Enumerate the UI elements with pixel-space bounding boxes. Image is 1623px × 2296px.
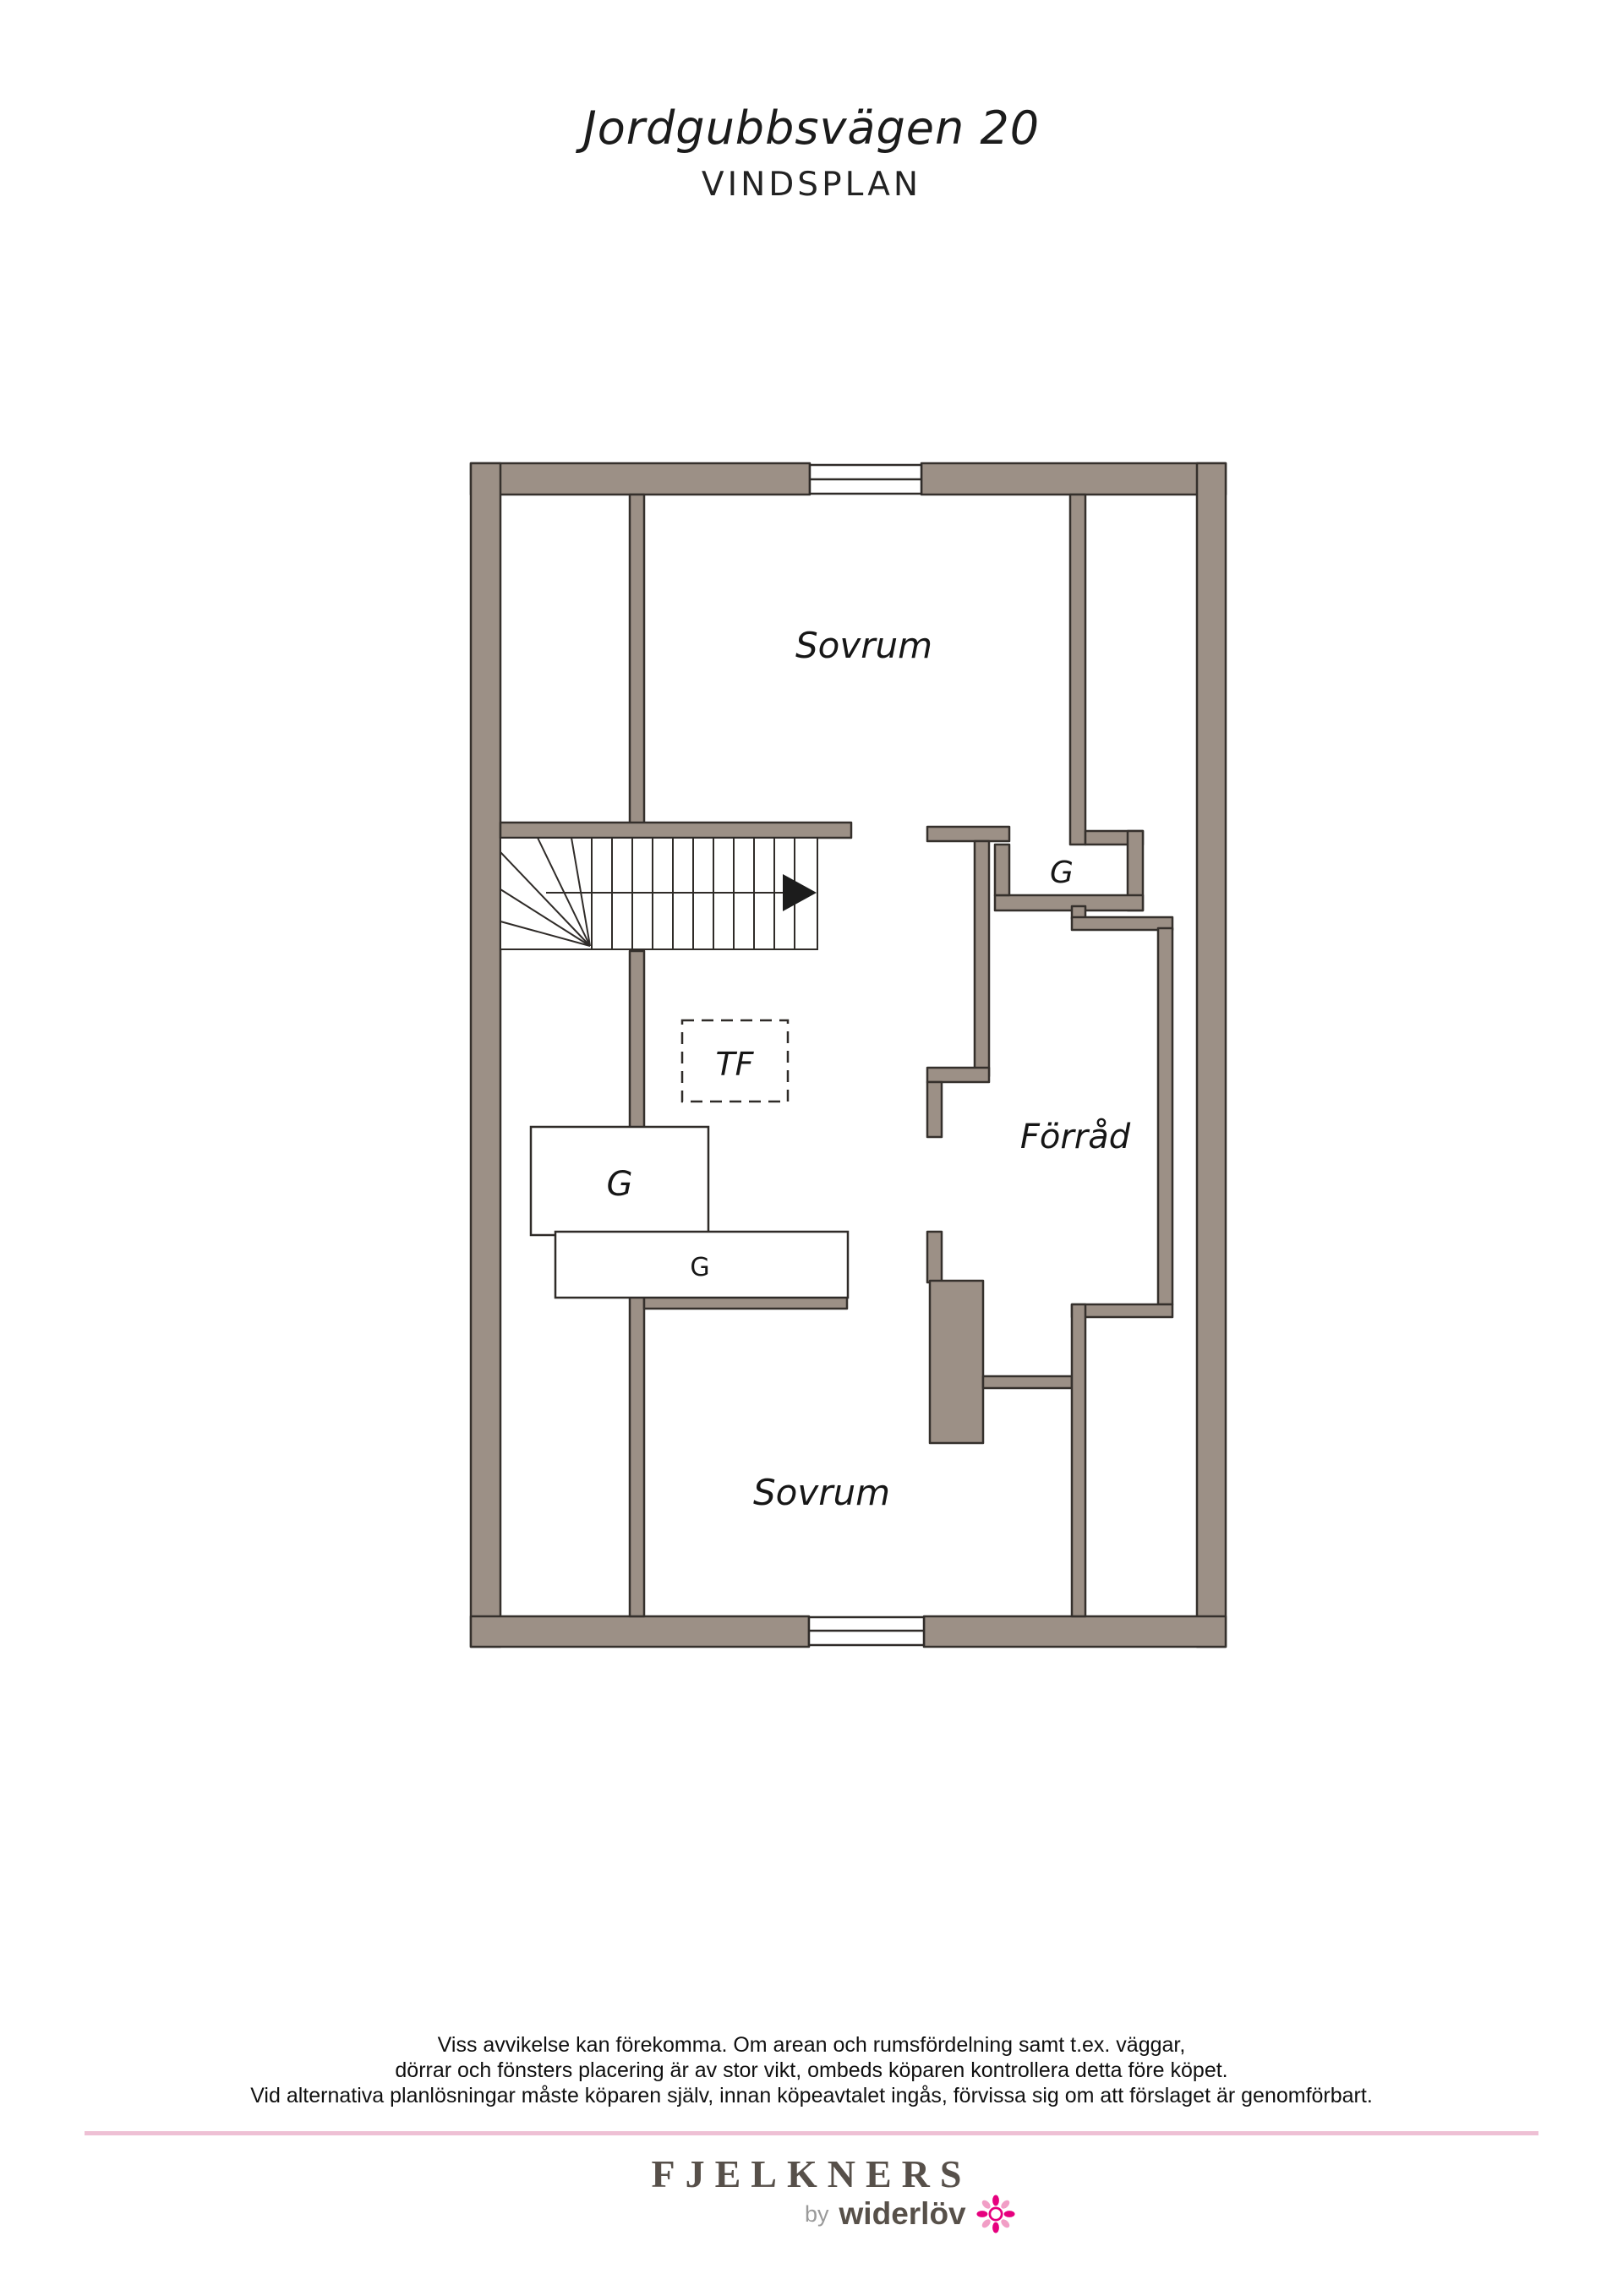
disclaimer-line: Viss avvikelse kan förekomma. Om arean o…	[0, 2032, 1623, 2058]
chimney-block	[930, 1281, 983, 1443]
wall-storage-left	[975, 841, 989, 1076]
wall-storage-bottom	[1072, 1304, 1172, 1317]
room-label-storage: Förråd	[1020, 1118, 1131, 1156]
room-label-bedroom-top: Sovrum	[795, 625, 932, 666]
pink-divider	[85, 2131, 1538, 2135]
wall-closet-left	[995, 845, 1009, 895]
label-tf: TF	[715, 1046, 754, 1083]
byline-prefix: by	[805, 2201, 829, 2228]
wall-outer-bottom-left	[471, 1616, 809, 1647]
wall-bridge	[983, 1376, 1072, 1388]
wall-door-post	[927, 1232, 942, 1282]
wall-center-lower	[1072, 1304, 1085, 1616]
wall-storage-left-lower	[927, 1082, 942, 1137]
disclaimer-line: Vid alternativa planlösningar måste köpa…	[0, 2083, 1623, 2108]
wall-outer-top-left	[471, 463, 810, 495]
page-subtitle: VINDSPLAN	[0, 166, 1623, 204]
wall-left-spine-lower	[630, 1294, 644, 1616]
brand-name: FJELKNERS	[0, 2151, 1623, 2196]
wall-storage-right	[1158, 928, 1172, 1304]
wall-outer-bottom-right	[924, 1616, 1226, 1647]
byline-brand: widerlöv	[839, 2196, 966, 2232]
wall-closet-bottom	[995, 895, 1143, 910]
staircase	[500, 838, 817, 949]
floor-plan: Sovrum Sovrum Förråd G G G TF	[456, 423, 1243, 1691]
label-wardrobe-g-small: G	[690, 1253, 709, 1282]
wall-left-spine-upper	[630, 495, 644, 824]
label-closet-g: G	[1050, 856, 1074, 890]
wall-storage-jog	[927, 1068, 989, 1082]
disclaimer-line: dörrar och fönsters placering är av stor…	[0, 2058, 1623, 2083]
page-title: Jordgubbsvägen 20	[0, 101, 1623, 155]
widerlov-flower-icon	[976, 2195, 1015, 2233]
room-label-bedroom-bottom: Sovrum	[753, 1472, 890, 1513]
wall-hall-horizontal	[927, 827, 1009, 841]
page: { "header": { "title": "Jordgubbsvägen 2…	[0, 0, 1623, 2296]
wall-stair-top	[500, 823, 851, 838]
wall-bedroom-top-right	[1070, 495, 1085, 845]
wall-outer-left	[471, 463, 500, 1647]
wall-left-spine-mid	[630, 951, 644, 1130]
wall-outer-top-right	[921, 463, 1226, 495]
label-wardrobe-g-large: G	[607, 1165, 633, 1204]
brand-byline: by widerlöv	[805, 2195, 1015, 2233]
disclaimer: Viss avvikelse kan förekomma. Om arean o…	[0, 2032, 1623, 2108]
wall-outer-right	[1197, 463, 1226, 1647]
